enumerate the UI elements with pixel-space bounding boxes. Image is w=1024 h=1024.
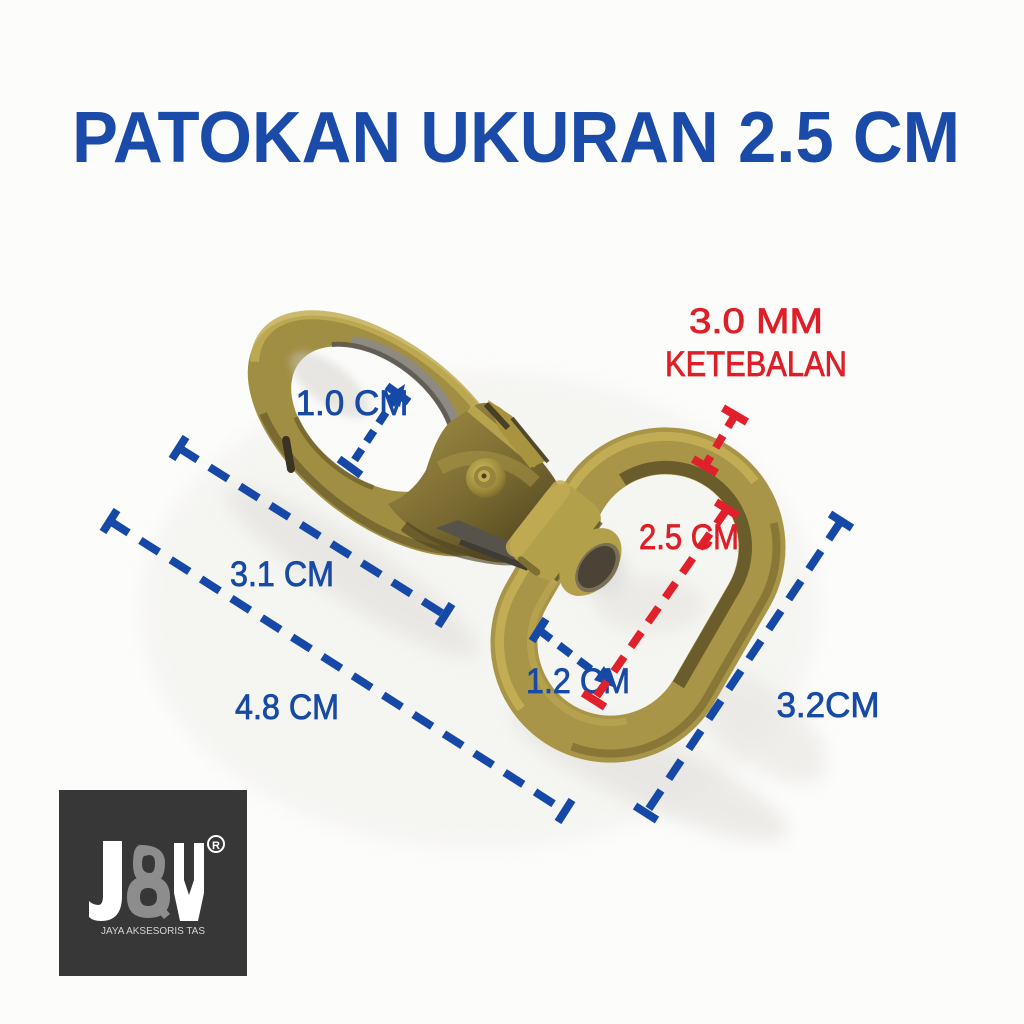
svg-text:2.5 CM: 2.5 CM xyxy=(639,518,739,557)
svg-text:R: R xyxy=(212,840,220,852)
svg-text:3.1 CM: 3.1 CM xyxy=(230,555,334,594)
svg-text:PATOKAN UKURAN 2.5 CM: PATOKAN UKURAN 2.5 CM xyxy=(72,98,960,178)
svg-text:3.0 MM: 3.0 MM xyxy=(689,302,823,341)
svg-text:KETEBALAN: KETEBALAN xyxy=(665,345,847,384)
svg-text:4.8 CM: 4.8 CM xyxy=(235,688,339,727)
svg-text:3.2CM: 3.2CM xyxy=(776,686,879,725)
svg-text:1.0 CM: 1.0 CM xyxy=(296,384,409,423)
svg-text:JAYA AKSESORIS TAS: JAYA AKSESORIS TAS xyxy=(101,925,205,937)
